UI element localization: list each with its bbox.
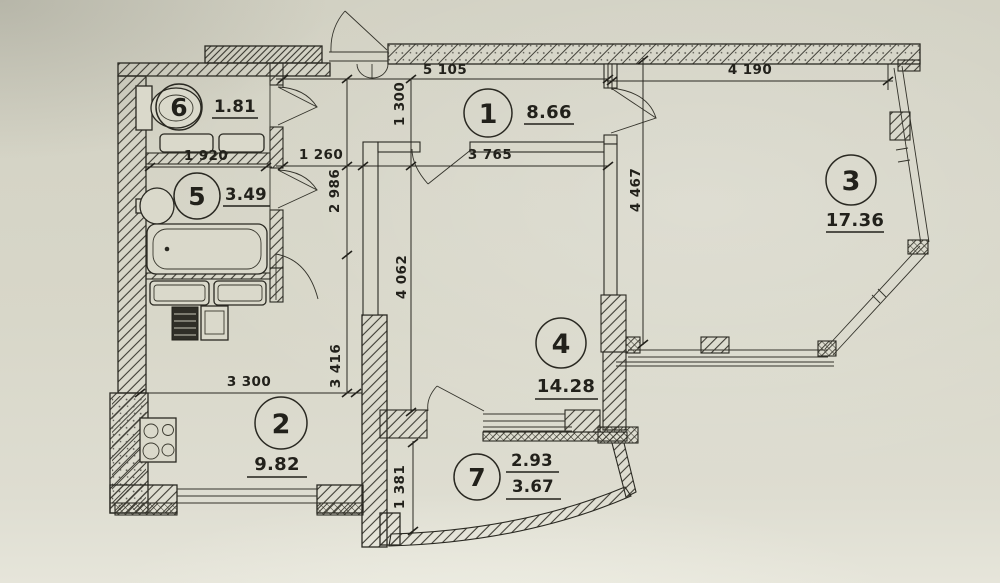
wall-room4-right-lower: [603, 352, 626, 430]
room-4-label: 4 14.28: [535, 318, 598, 399]
wall-corridor: [363, 142, 378, 315]
door-bathroom: [278, 170, 317, 208]
dim-text-4062: 4 062: [394, 255, 410, 299]
room-2-label: 2 9.82: [247, 397, 307, 477]
room-2-area: 9.82: [254, 454, 300, 475]
room-4-number: 4: [552, 329, 571, 360]
appliance-icon: [201, 306, 228, 340]
room-4-area: 14.28: [537, 376, 595, 397]
floor-plan-drawing: 5 105 4 190 1 260 3 765 1 300 4: [0, 0, 1000, 583]
wall-room4-bottom-right: [565, 410, 600, 432]
sill-band-left: [115, 503, 177, 515]
door-hall-room3: [611, 88, 656, 133]
bay-window-right: [890, 66, 929, 254]
dim-text-5105: 5 105: [423, 62, 467, 78]
bay-pier: [890, 112, 910, 140]
room-6-number: 6: [170, 93, 187, 122]
dimension-1300: 1 300: [392, 79, 411, 166]
fixtures: [136, 64, 388, 462]
wall-room4-room3-thick: [601, 295, 626, 352]
room-6-area: 1.81: [214, 97, 256, 116]
bay-corner-block: [908, 240, 928, 254]
stove-icon: [140, 418, 176, 462]
room4-balcony-window: [483, 414, 572, 431]
room-3-area: 17.36: [826, 210, 884, 231]
washing-machine-icon: [172, 307, 198, 340]
room-5-area: 3.49: [225, 185, 267, 204]
dim-text-4190: 4 190: [728, 62, 772, 78]
room3-window-jamb-right: [818, 341, 836, 356]
room-5-label: 5 3.49: [174, 173, 270, 219]
vent-shaft-block: [205, 46, 322, 63]
room-1-label: 1 8.66: [464, 89, 574, 137]
dim-text-2986: 2 986: [327, 169, 343, 213]
wall-bath-right-1: [270, 63, 283, 85]
room-7-area-top: 2.93: [511, 451, 553, 470]
room-3-number: 3: [842, 166, 861, 197]
wall-bath-right-3: [270, 210, 283, 268]
bathtub-icon: [147, 224, 267, 274]
room-7-label: 7 2.93 3.67: [454, 451, 561, 500]
toilet-icon: [136, 86, 201, 130]
wall-room4-top-a: [378, 142, 420, 152]
dim-text-3765: 3 765: [468, 147, 512, 163]
dim-text-1920: 1 920: [184, 148, 228, 164]
dim-text-3300: 3 300: [227, 374, 271, 390]
dim-text-1381: 1 381: [392, 465, 408, 509]
room-7-area-bottom: 3.67: [512, 477, 554, 496]
wall-top-left: [118, 63, 330, 76]
dim-text-1260: 1 260: [299, 147, 343, 163]
dimension-2986-3416: 2 986 3 416: [327, 79, 352, 397]
wall-bath-right-4: [270, 268, 283, 302]
dim-text-3416: 3 416: [328, 344, 344, 388]
wall-niche-arc: [357, 64, 388, 78]
sill-band-right: [317, 503, 363, 515]
kitchen-counter-icon: [150, 281, 266, 305]
room3-window-pier: [701, 337, 729, 353]
room-1-number: 1: [479, 99, 498, 130]
sill-band-room4: [483, 432, 627, 441]
room-3-label: 3 17.36: [826, 155, 884, 232]
room3-window-jamb-left: [626, 337, 640, 353]
bay-window-angled: [825, 246, 928, 355]
balcony-parapet-curve: [389, 487, 631, 546]
room-7-number: 7: [468, 463, 485, 492]
dim-text-1300: 1 300: [392, 82, 408, 126]
wall-hall-room3-b: [604, 135, 617, 144]
door-balcony: [428, 386, 484, 411]
dimension-4467: 4 467: [628, 56, 648, 348]
room-5-number: 5: [188, 182, 205, 211]
room-2-number: 2: [272, 409, 291, 440]
wall-room4-bottom-left: [380, 410, 427, 438]
dim-text-4467: 4 467: [628, 168, 644, 212]
room-1-area: 8.66: [526, 102, 572, 123]
door-wc: [278, 87, 317, 125]
dimension-4062: 4 062: [394, 166, 416, 416]
room3-bottom-window: [616, 337, 836, 366]
wall-bay-top-corner: [898, 60, 920, 71]
dimension-4190: 4 190: [607, 62, 893, 90]
door-entrance: [329, 11, 388, 61]
wall-bath-right-2: [270, 127, 283, 168]
wall-top-main: [388, 44, 920, 64]
